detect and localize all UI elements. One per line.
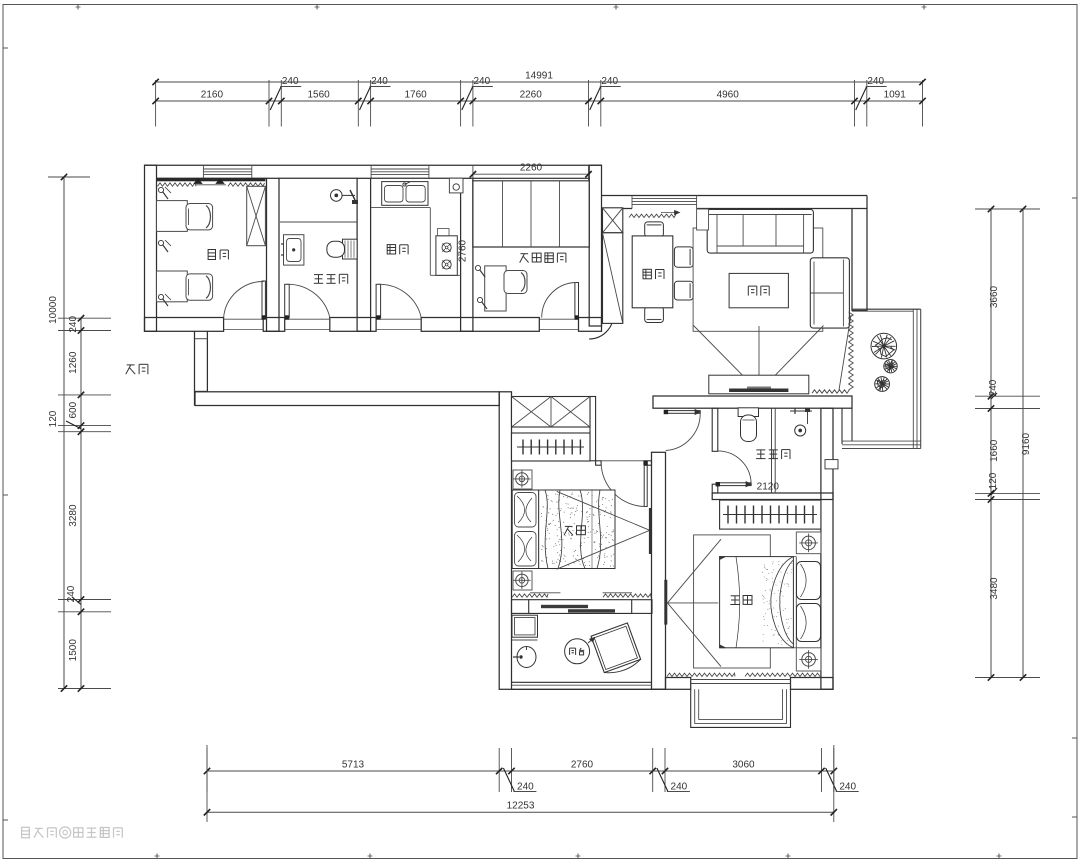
svg-text:2760: 2760 xyxy=(571,760,594,771)
svg-text:240: 240 xyxy=(839,782,856,793)
svg-text:1760: 1760 xyxy=(404,90,427,101)
svg-text:2760: 2760 xyxy=(458,239,469,262)
svg-text:10000: 10000 xyxy=(48,296,59,324)
svg-text:240: 240 xyxy=(68,316,79,333)
svg-text:240: 240 xyxy=(371,76,388,87)
svg-text:1091: 1091 xyxy=(884,90,907,101)
svg-text:240: 240 xyxy=(282,76,299,87)
svg-text:3060: 3060 xyxy=(732,760,755,771)
svg-text:240: 240 xyxy=(867,76,884,87)
svg-text:9160: 9160 xyxy=(1021,432,1032,455)
svg-text:2160: 2160 xyxy=(201,90,224,101)
svg-text:240: 240 xyxy=(517,782,534,793)
svg-text:2120: 2120 xyxy=(757,482,780,493)
svg-text:240: 240 xyxy=(671,782,688,793)
svg-text:12253: 12253 xyxy=(507,801,535,812)
svg-text:3480: 3480 xyxy=(989,577,1000,600)
svg-text:1660: 1660 xyxy=(989,439,1000,462)
svg-text:5713: 5713 xyxy=(342,760,365,771)
svg-text:3280: 3280 xyxy=(68,504,79,527)
svg-text:120: 120 xyxy=(988,472,999,489)
svg-text:600: 600 xyxy=(68,401,79,418)
svg-text:120: 120 xyxy=(48,410,59,427)
svg-text:1260: 1260 xyxy=(68,351,79,374)
svg-text:1500: 1500 xyxy=(68,639,79,662)
svg-text:4960: 4960 xyxy=(717,90,740,101)
svg-text:240: 240 xyxy=(988,379,999,396)
svg-text:2260: 2260 xyxy=(520,163,543,174)
svg-text:2260: 2260 xyxy=(520,90,543,101)
svg-text:3660: 3660 xyxy=(989,285,1000,308)
svg-text:14991: 14991 xyxy=(525,71,553,82)
svg-text:240: 240 xyxy=(601,76,618,87)
svg-text:1560: 1560 xyxy=(307,90,330,101)
svg-text:240: 240 xyxy=(473,76,490,87)
